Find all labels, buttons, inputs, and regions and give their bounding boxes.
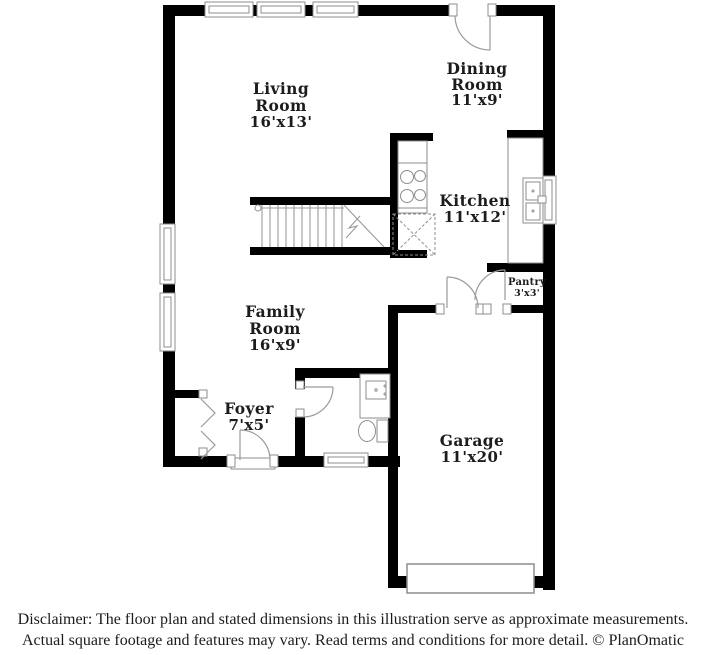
floorplan-page: Living Room 16'x13' Dining Room 11'x9' K… — [0, 0, 706, 655]
dining-room-dims: 11'x9' — [451, 91, 503, 109]
disclaimer-line2: Actual square footage and features may v… — [0, 630, 706, 651]
window — [324, 453, 368, 467]
front-door-threshold — [231, 458, 275, 469]
wall-segment — [390, 133, 398, 258]
bathroom-fixtures — [359, 374, 391, 442]
pantry-door-swing — [475, 270, 505, 300]
garage-dims: 11'x20' — [441, 448, 504, 466]
wall-segment — [543, 5, 555, 590]
room-label-pantry: Pantry 3'x3' — [508, 277, 547, 299]
kitchen-sink-icon — [523, 178, 546, 223]
pantry-dims: 3'x3' — [514, 288, 540, 299]
window — [160, 224, 175, 284]
front-door-swing — [240, 430, 270, 460]
wall-segment — [388, 305, 398, 588]
window — [160, 293, 175, 351]
window — [313, 2, 358, 17]
window — [205, 2, 253, 17]
stairs — [255, 205, 384, 247]
stair-cutline — [344, 205, 384, 247]
room-label-foyer: Foyer 7'x5' — [224, 399, 274, 434]
wall-segment — [250, 247, 392, 255]
disclaimer-footer: Disclaimer: The floor plan and stated di… — [0, 609, 706, 651]
toilet-icon — [359, 420, 389, 442]
wall-segment — [388, 305, 443, 313]
wall-segment — [390, 133, 433, 141]
kitchen-dims: 11'x12' — [444, 208, 507, 226]
garage-door — [407, 564, 534, 593]
entry-door-swing — [455, 16, 490, 50]
room-label-living: Living Room 16'x13' — [250, 79, 313, 131]
bathroom-door-swing — [303, 387, 333, 417]
wall-segment — [510, 305, 543, 313]
wall-segment — [295, 417, 305, 456]
bathroom-sink-icon — [360, 374, 390, 418]
family-room-dims: 16'x9' — [249, 336, 301, 354]
pantry-name: Pantry — [508, 277, 547, 288]
floorplan-drawing: Living Room 16'x13' Dining Room 11'x9' K… — [0, 0, 706, 608]
stair-newel-post — [255, 205, 261, 211]
wall-segment — [163, 456, 235, 467]
stair-treads — [262, 205, 342, 247]
refrigerator-space-icon — [393, 214, 435, 255]
stove-icon — [398, 163, 427, 208]
room-label-dining: Dining Room 11'x9' — [447, 59, 508, 109]
living-room-dims: 16'x13' — [250, 113, 313, 131]
wall-segment — [390, 250, 427, 258]
garage-entry-door-swing — [447, 277, 478, 308]
wall-segment — [487, 263, 543, 272]
wall-segment — [250, 197, 392, 205]
foyer-dims: 7'x5' — [228, 416, 269, 434]
disclaimer-line1: Disclaimer: The floor plan and stated di… — [0, 609, 706, 630]
window — [257, 2, 305, 17]
room-label-kitchen: Kitchen 11'x12' — [439, 191, 510, 226]
room-label-family: Family Room 16'x9' — [245, 302, 305, 354]
wall-segment — [507, 130, 543, 138]
room-label-garage: Garage 11'x20' — [440, 431, 505, 466]
